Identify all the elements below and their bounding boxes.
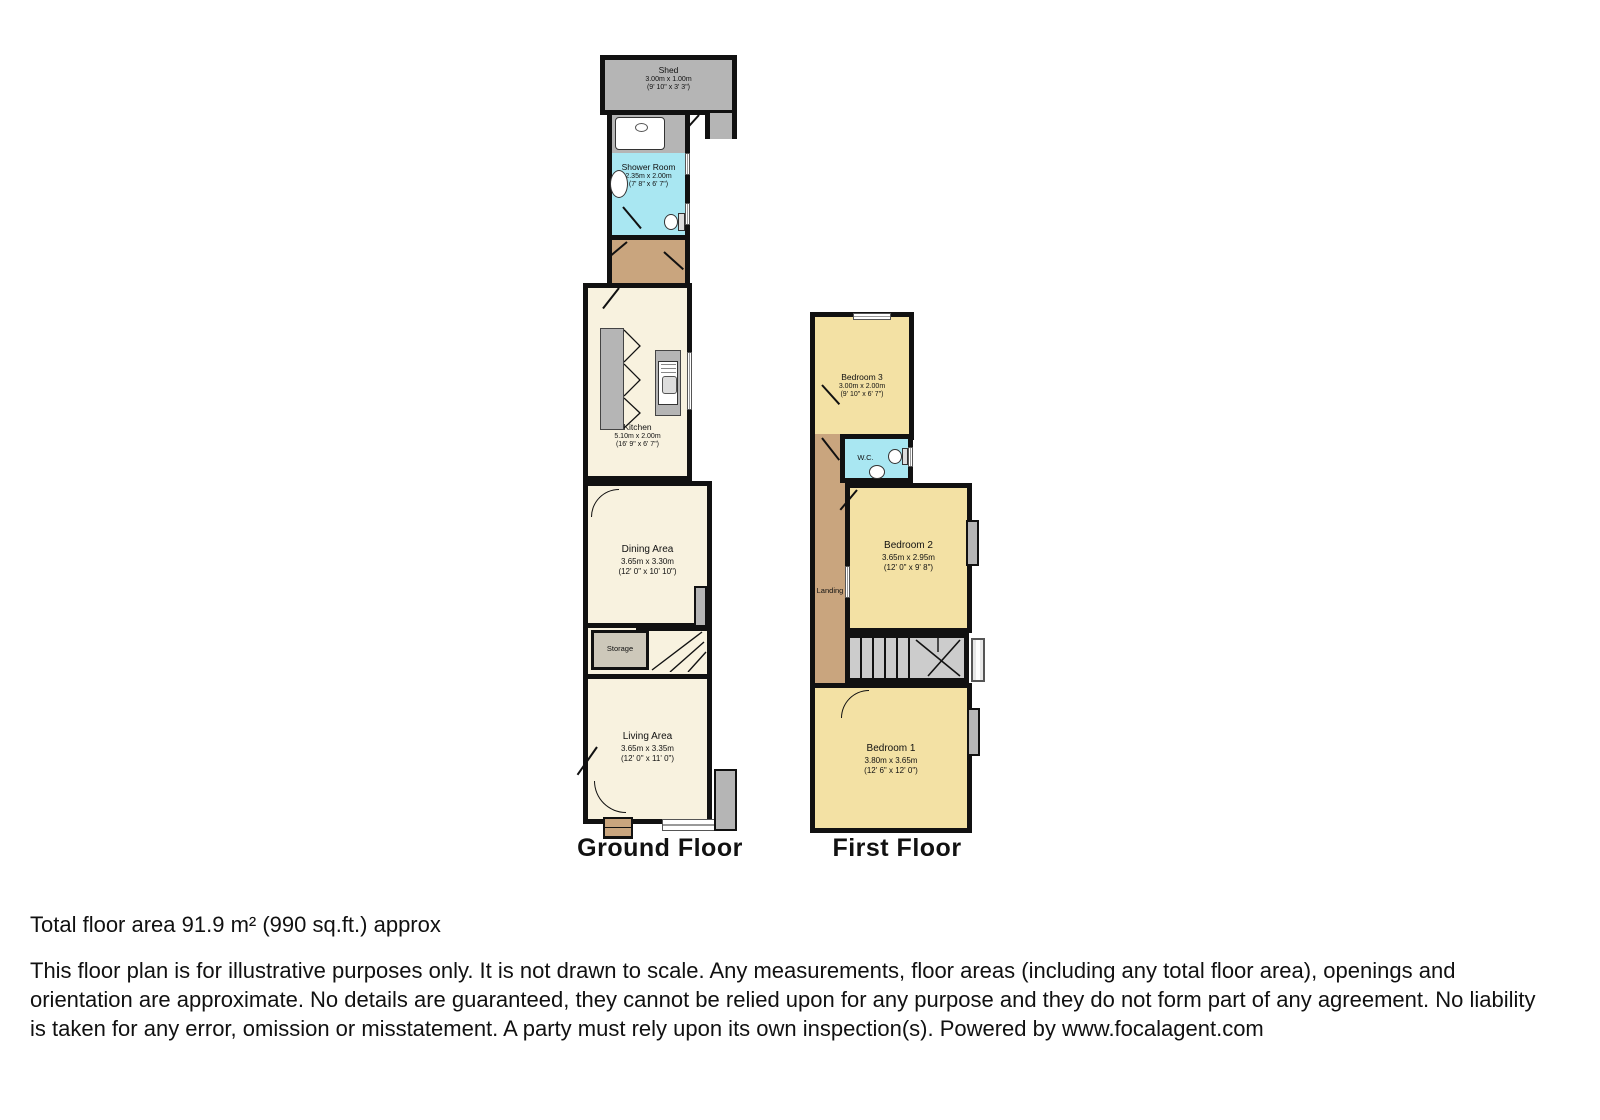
lobby-door-leaf-2 <box>663 251 684 270</box>
dining-door-arc <box>591 489 619 517</box>
room-label-bedroom2: Bedroom 2 3.65m x 2.95m (12' 0" x 9' 8") <box>850 540 967 573</box>
room-kitchen: Kitchen 5.10m x 2.00m (16' 9" x 6' 7") <box>583 283 692 481</box>
shower-window-upper <box>685 153 690 175</box>
shower-window-lower <box>685 203 690 225</box>
ground-floor-plan: Shed 3.00m x 1.00m (9' 10" x 3' 3") Show… <box>578 55 740 845</box>
room-label-dining: Dining Area 3.65m x 3.30m (12' 0" x 10' … <box>588 544 707 577</box>
kitchen-door-leaf <box>602 287 620 309</box>
basin <box>610 170 628 198</box>
bedroom2-chimney <box>966 520 979 566</box>
room-label-bedroom1: Bedroom 1 3.80m x 3.65m (12' 6" x 12' 0"… <box>815 743 967 776</box>
shower-door-leaf <box>622 206 642 229</box>
room-living: Living Area 3.65m x 3.35m (12' 0" x 11' … <box>583 674 712 824</box>
bedroom3-window <box>853 313 891 320</box>
kitchen-counter-right <box>655 350 681 416</box>
toilet-tank <box>678 213 685 231</box>
bedroom1-door-arc <box>841 690 869 718</box>
room-bedroom2: Bedroom 2 3.65m x 2.95m (12' 0" x 9' 8") <box>845 483 972 633</box>
kitchen-drainer-lines <box>661 364 676 373</box>
lobby-door-leaf-1 <box>608 241 628 258</box>
disclaimer-text: This floor plan is for illustrative purp… <box>30 956 1542 1043</box>
first-floor-title: First Floor <box>742 834 1052 863</box>
room-label-bedroom3: Bedroom 3 3.00m x 2.00m (9' 10" x 6' 7") <box>815 372 909 400</box>
room-label-shed: Shed 3.00m x 1.00m (9' 10" x 3' 3") <box>605 65 732 93</box>
room-bedroom3: Bedroom 3 3.00m x 2.00m (9' 10" x 6' 7") <box>810 312 914 440</box>
toilet-bowl <box>664 214 678 230</box>
shower-drain <box>635 123 648 132</box>
room-bedroom1: Bedroom 1 3.80m x 3.65m (12' 6" x 12' 0"… <box>810 683 972 833</box>
shower-tray <box>615 117 665 150</box>
room-label-living: Living Area 3.65m x 3.35m (12' 0" x 11' … <box>588 731 707 764</box>
wc-toilet-bowl <box>888 449 902 464</box>
room-wc: W.C. <box>840 434 913 483</box>
landing-door-leaf <box>821 437 840 460</box>
entrance-door-leaf <box>577 746 598 775</box>
bedroom1-chimney <box>967 708 980 756</box>
room-label-storage: Storage <box>594 644 646 653</box>
room-label-landing: Landing <box>815 586 845 595</box>
total-floor-area-text: Total floor area 91.9 m² (990 sq.ft.) ap… <box>30 912 441 938</box>
room-storage: Storage <box>591 630 649 670</box>
room-shower: Shower Room 2.35m x 2.00m (7' 8" x 6' 7"… <box>607 110 690 240</box>
kitchen-counter-left <box>600 328 624 430</box>
kitchen-window <box>687 352 692 410</box>
winder-stairs <box>650 630 707 672</box>
dining-chimney <box>694 586 707 628</box>
living-bay-window <box>662 819 718 831</box>
first-floor-plan: Bedroom 3 3.00m x 2.00m (9' 10" x 6' 7")… <box>810 310 990 840</box>
room-shed: Shed 3.00m x 1.00m (9' 10" x 3' 3") <box>600 55 737 115</box>
kitchen-sink-bowl <box>662 376 677 394</box>
kitchen-cabinet-zigzag <box>624 328 642 430</box>
floorplan-page: Shed 3.00m x 1.00m (9' 10" x 3' 3") Show… <box>0 0 1600 1120</box>
bedroom2-left-window <box>845 566 850 598</box>
room-dining: Dining Area 3.65m x 3.30m (12' 0" x 10' … <box>583 481 712 628</box>
storage-stairs-strip: Storage <box>583 628 712 674</box>
entrance-door-arc <box>594 781 626 813</box>
kitchen-sink-unit <box>658 361 678 405</box>
wc-basin <box>869 465 885 479</box>
staircase <box>845 633 969 683</box>
stairs-window <box>971 638 985 682</box>
room-lobby <box>607 240 690 285</box>
shed-annex <box>705 113 737 139</box>
wc-window <box>908 447 913 467</box>
living-chimney <box>714 769 737 831</box>
bedroom3-door-leaf <box>821 384 840 405</box>
staircase-winder <box>914 638 964 678</box>
